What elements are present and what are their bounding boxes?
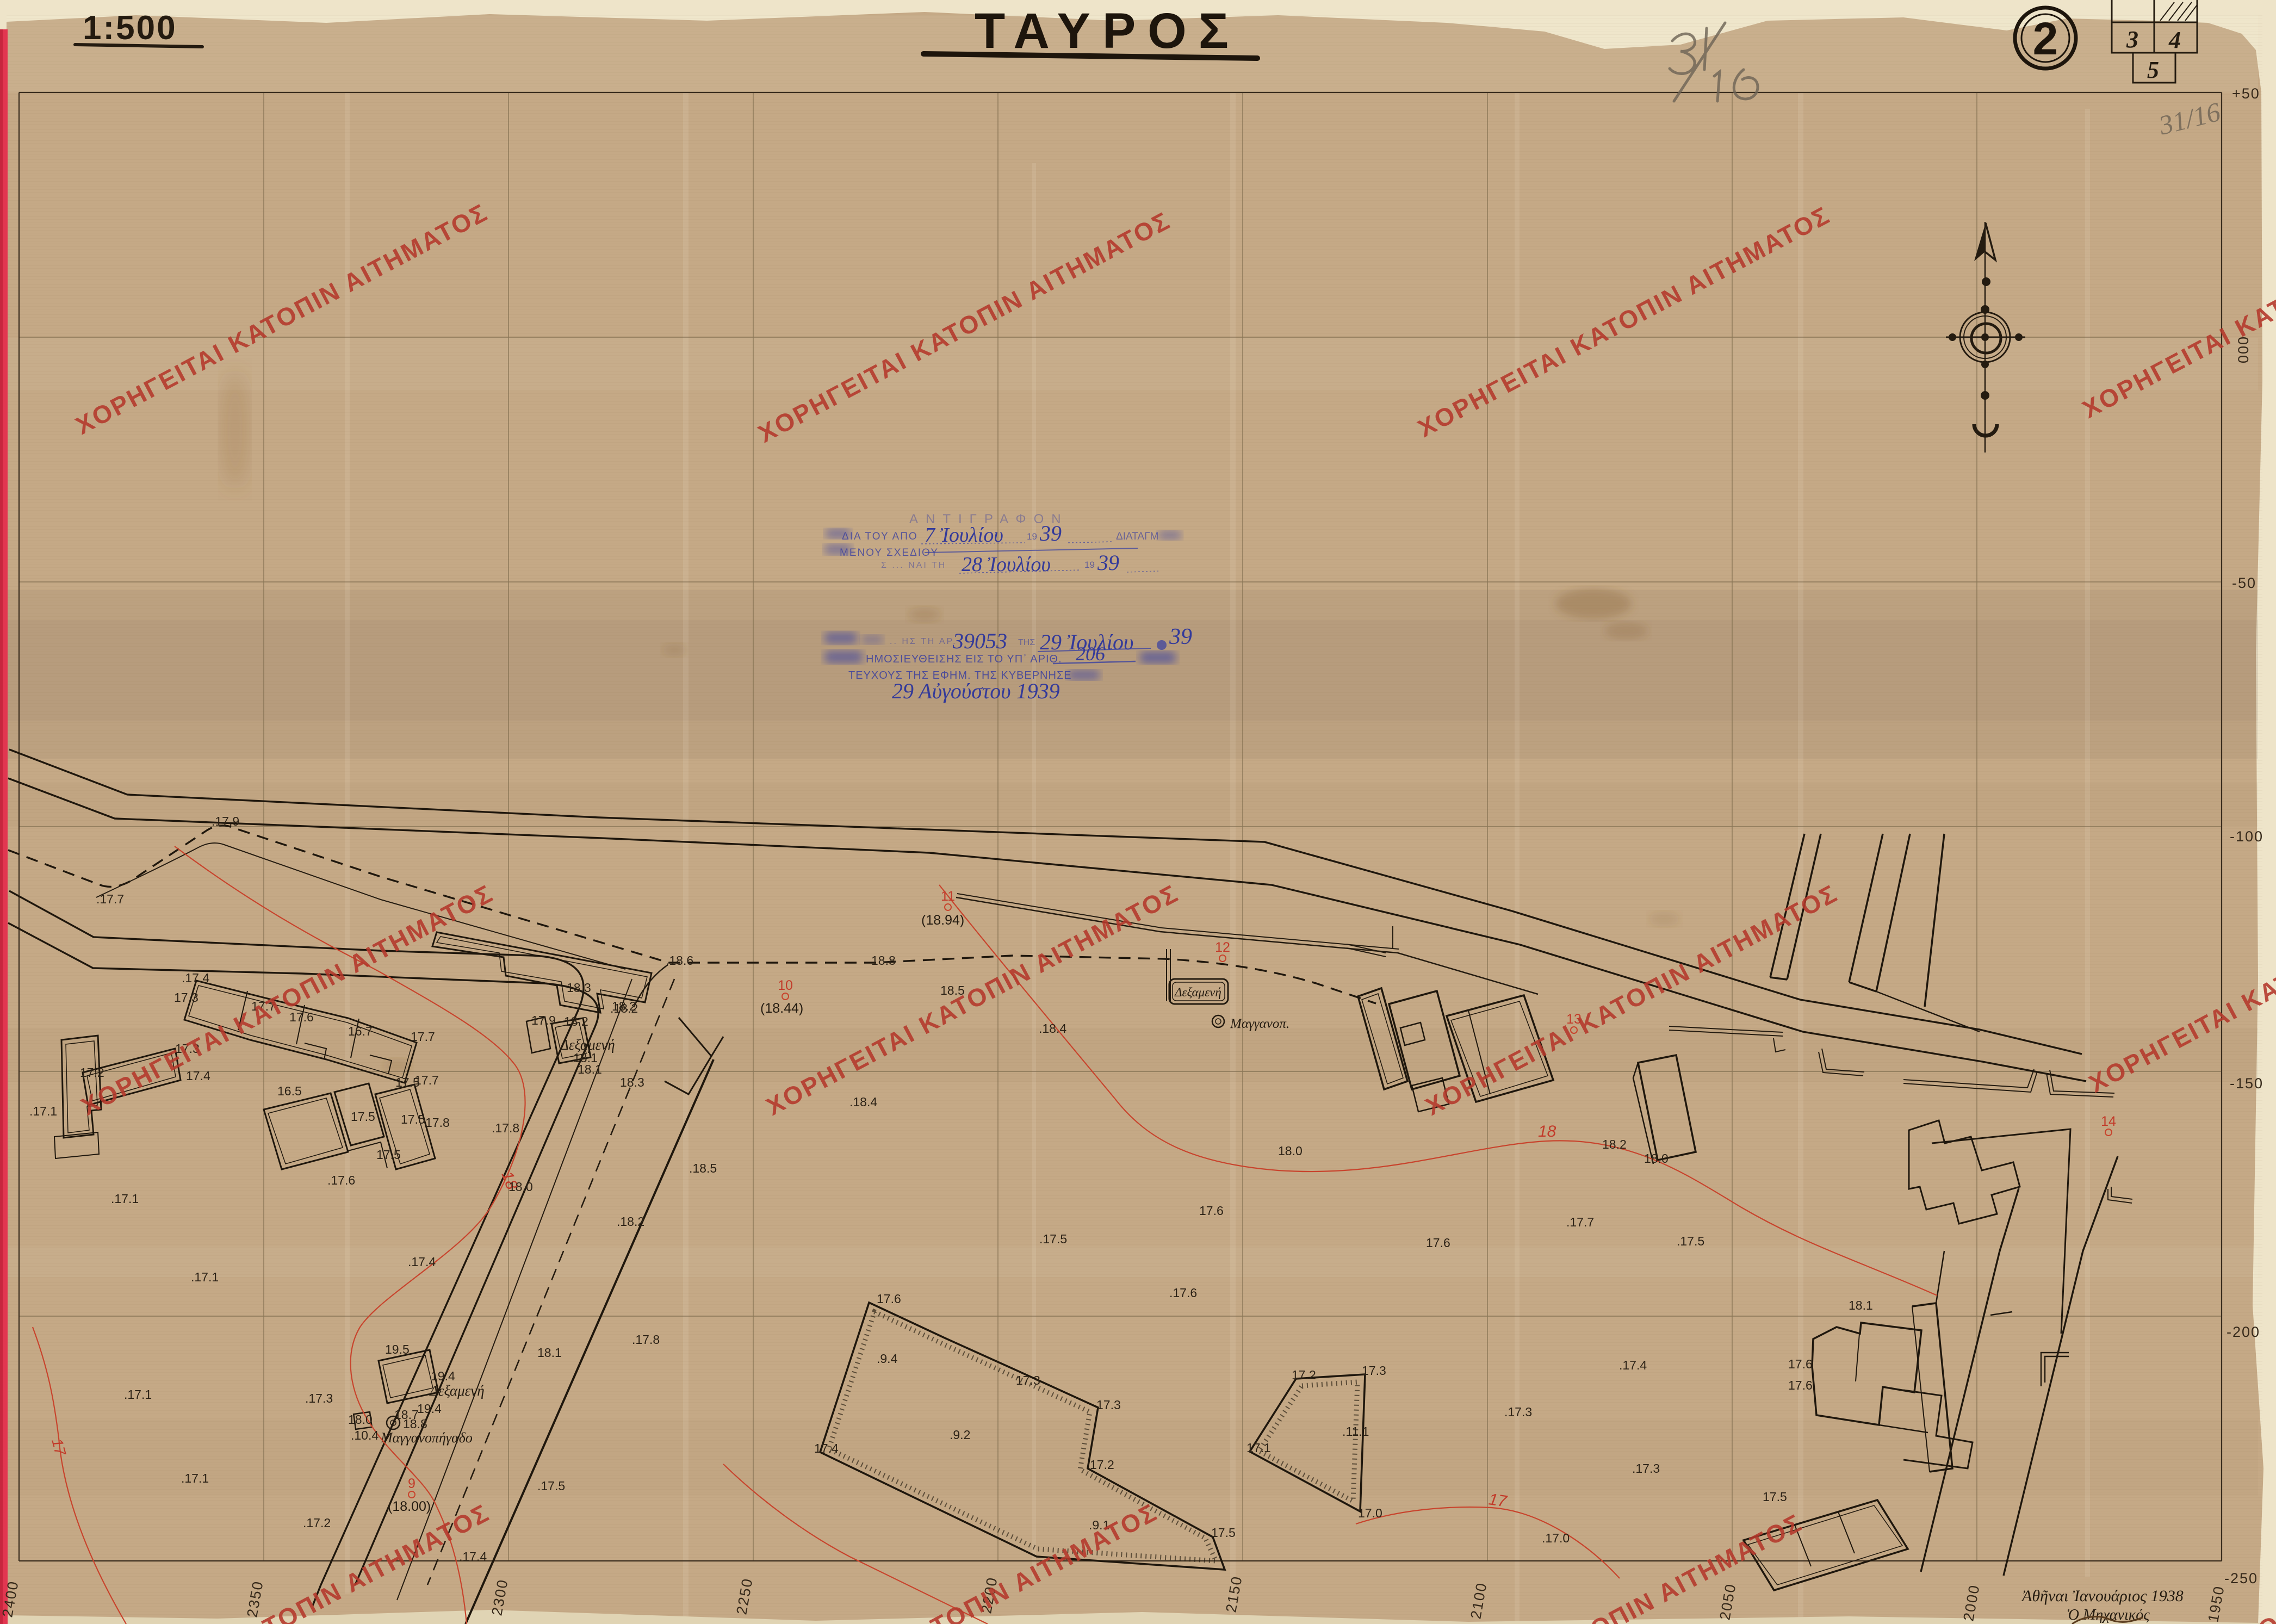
svg-text:5: 5 <box>2147 57 2159 83</box>
svg-text:18.0: 18.0 <box>1278 1144 1303 1158</box>
svg-text:19.4: 19.4 <box>417 1402 442 1416</box>
svg-text:.17.6: .17.6 <box>1169 1286 1197 1300</box>
svg-text:17.5: 17.5 <box>351 1109 375 1124</box>
svg-text:17.6: 17.6 <box>1199 1204 1224 1218</box>
svg-text:17.2: 17.2 <box>1090 1458 1114 1472</box>
svg-text:.17.2: .17.2 <box>303 1516 331 1530</box>
svg-text:-50: -50 <box>2232 575 2256 591</box>
svg-text:-150: -150 <box>2230 1075 2263 1092</box>
svg-text:17.4: 17.4 <box>186 1069 210 1083</box>
svg-text:.18.4: .18.4 <box>1039 1021 1066 1036</box>
svg-text:17.3: 17.3 <box>1016 1373 1040 1387</box>
svg-text:18.0: 18.0 <box>508 1180 533 1194</box>
svg-text:18.3: 18.3 <box>567 981 591 995</box>
svg-text:.17.4: .17.4 <box>408 1255 436 1269</box>
svg-text:14: 14 <box>2101 1114 2116 1129</box>
svg-text:18.1: 18.1 <box>537 1346 562 1360</box>
svg-text:39: 39 <box>1169 624 1192 649</box>
svg-text:17.3: 17.3 <box>1096 1398 1121 1412</box>
svg-text:17.8: 17.8 <box>425 1115 450 1130</box>
svg-text:18.1: 18.1 <box>578 1062 602 1076</box>
svg-text:.18.2: .18.2 <box>617 1214 644 1229</box>
svg-text:16.7: 16.7 <box>348 1024 373 1038</box>
svg-text:ΤΑΥΡΟΣ: ΤΑΥΡΟΣ <box>975 3 1241 59</box>
svg-text:17.5: 17.5 <box>376 1148 401 1162</box>
svg-text:18.2: 18.2 <box>612 999 636 1013</box>
svg-text:.17.6: .17.6 <box>327 1173 355 1187</box>
svg-text:18.3: 18.3 <box>620 1075 644 1089</box>
svg-text:-100: -100 <box>2230 828 2263 845</box>
svg-text:17.6: 17.6 <box>1788 1378 1813 1392</box>
svg-text:.17.3: .17.3 <box>305 1391 333 1405</box>
svg-text:.17.1: .17.1 <box>191 1270 219 1284</box>
svg-text:18.8: 18.8 <box>871 953 896 968</box>
svg-text:17.2: 17.2 <box>1292 1368 1316 1382</box>
svg-text:Δεξαμενή: Δεξαμενή <box>1174 985 1221 999</box>
svg-text:17.7: 17.7 <box>411 1030 435 1044</box>
svg-text:39: 39 <box>1097 550 1119 575</box>
svg-text:17.1: 17.1 <box>1246 1441 1271 1455</box>
svg-text:12: 12 <box>1215 940 1230 955</box>
svg-text:18: 18 <box>1538 1123 1556 1140</box>
svg-text:39053: 39053 <box>952 629 1007 653</box>
svg-text:11: 11 <box>941 889 955 904</box>
svg-text:.17.5: .17.5 <box>537 1479 565 1493</box>
svg-text:19: 19 <box>1027 531 1037 542</box>
svg-text:17.3: 17.3 <box>1362 1363 1386 1378</box>
svg-text:19.5: 19.5 <box>385 1342 410 1356</box>
svg-text:17.7: 17.7 <box>414 1073 439 1087</box>
svg-text:29 Αὐγούστου 1939: 29 Αὐγούστου 1939 <box>892 679 1060 703</box>
svg-text:-250: -250 <box>2224 1570 2258 1586</box>
svg-text:.17.8: .17.8 <box>492 1121 519 1135</box>
svg-text:19: 19 <box>1084 560 1095 570</box>
svg-text:ΜΕΝΟΥ ΣΧΕΔΙΟΥ: ΜΕΝΟΥ ΣΧΕΔΙΟΥ <box>840 547 939 559</box>
svg-text:.18.5: .18.5 <box>689 1161 717 1175</box>
svg-text:17.3: 17.3 <box>174 990 199 1005</box>
svg-text:206: 206 <box>1076 643 1105 665</box>
svg-text:(18.44): (18.44) <box>760 1001 803 1016</box>
svg-text:10: 10 <box>778 978 793 993</box>
svg-text:.18.4: .18.4 <box>849 1095 877 1109</box>
svg-text:16.5: 16.5 <box>277 1084 302 1098</box>
svg-text:.17.1: .17.1 <box>111 1192 139 1206</box>
svg-text:18.0: 18.0 <box>348 1412 373 1427</box>
svg-text:18.2: 18.2 <box>564 1014 588 1028</box>
svg-text:.17.1: .17.1 <box>124 1387 152 1402</box>
svg-text:.. ΗΣ ΤΗ ΑΡ.: .. ΗΣ ΤΗ ΑΡ. <box>890 637 957 646</box>
svg-text:.17.4: .17.4 <box>1619 1358 1647 1372</box>
svg-text:.9.4: .9.4 <box>877 1352 898 1366</box>
svg-text:18.2: 18.2 <box>1602 1137 1627 1151</box>
svg-text:4: 4 <box>2168 27 2181 53</box>
svg-text:17.2: 17.2 <box>80 1065 104 1080</box>
svg-text:.17.7: .17.7 <box>96 892 124 906</box>
svg-text:17.6: 17.6 <box>1788 1357 1813 1371</box>
svg-text:.17.4: .17.4 <box>459 1549 487 1564</box>
svg-text:Μαγγανοπ.: Μαγγανοπ. <box>1230 1016 1289 1031</box>
svg-text:39: 39 <box>1039 521 1062 546</box>
svg-text:.17.1: .17.1 <box>29 1104 57 1118</box>
svg-text:17.5: 17.5 <box>1763 1490 1787 1504</box>
svg-text:Σ ... ΝΑΙ ΤΗ: Σ ... ΝΑΙ ΤΗ <box>881 561 946 570</box>
svg-text:.17.4: .17.4 <box>182 971 209 985</box>
svg-text:+50: +50 <box>2232 85 2260 102</box>
svg-text:.11.1: .11.1 <box>1342 1424 1369 1439</box>
svg-text:.17.5: .17.5 <box>1677 1234 1704 1248</box>
svg-text:ΤΗΣ: ΤΗΣ <box>1018 638 1035 647</box>
svg-text:17.6: 17.6 <box>1426 1236 1450 1250</box>
svg-text:9: 9 <box>408 1476 415 1491</box>
svg-text:18.1: 18.1 <box>1849 1298 1873 1312</box>
svg-text:17.9: 17.9 <box>531 1013 556 1027</box>
svg-text:.9.2: .9.2 <box>950 1428 970 1442</box>
svg-text:.10.4: .10.4 <box>351 1428 379 1442</box>
svg-text:.17.5: .17.5 <box>1039 1232 1067 1246</box>
svg-text:.17.3: .17.3 <box>1504 1405 1532 1419</box>
svg-text:.17.1: .17.1 <box>181 1471 209 1485</box>
svg-text:(18.00): (18.00) <box>388 1499 431 1514</box>
svg-text:-200: -200 <box>2227 1324 2260 1340</box>
svg-text:17.5: 17.5 <box>1211 1526 1236 1540</box>
svg-text:1:500: 1:500 <box>83 9 177 47</box>
svg-text:17.0: 17.0 <box>1358 1506 1382 1520</box>
svg-text:Μαγγανοπήγαδο: Μαγγανοπήγαδο <box>380 1430 473 1446</box>
svg-text:19.4: 19.4 <box>431 1369 455 1383</box>
svg-text:ΔΙΑΤΑΓΜ: ΔΙΑΤΑΓΜ <box>1116 531 1158 542</box>
svg-text:.18.6: .18.6 <box>666 953 693 968</box>
svg-text:2: 2 <box>2033 13 2058 64</box>
svg-text:Δεξαμενή: Δεξαμενή <box>429 1383 485 1399</box>
svg-text:.17.7: .17.7 <box>1566 1215 1594 1229</box>
svg-text:.17.0: .17.0 <box>1542 1531 1570 1545</box>
svg-text:.17.3: .17.3 <box>1632 1461 1660 1476</box>
svg-text:17.6: 17.6 <box>877 1292 901 1306</box>
svg-text:.17.8: .17.8 <box>632 1332 660 1347</box>
svg-text:ΗΜΟΣΙΕΥΘΕΙΣΗΣ ΕΙΣ ΤΟ ΥΠ᾽ ΑΡΙΘ.: ΗΜΟΣΙΕΥΘΕΙΣΗΣ ΕΙΣ ΤΟ ΥΠ᾽ ΑΡΙΘ. <box>866 653 1062 665</box>
svg-text:17.4: 17.4 <box>814 1441 839 1455</box>
svg-text:Ἀθῆναι Ἰανουάριος 1938: Ἀθῆναι Ἰανουάριος 1938 <box>2021 1587 2184 1605</box>
svg-text:ΔΙΑ ΤΟΥ ΑΠΟ: ΔΙΑ ΤΟΥ ΑΠΟ <box>842 531 918 542</box>
svg-text:3: 3 <box>2126 26 2138 53</box>
svg-text:17.5: 17.5 <box>401 1112 425 1126</box>
svg-text:18.0: 18.0 <box>1644 1151 1669 1166</box>
svg-text:18.8: 18.8 <box>403 1417 427 1431</box>
svg-text:17: 17 <box>1487 1490 1509 1511</box>
svg-text:.17.9: .17.9 <box>212 814 239 828</box>
svg-text:(18.94): (18.94) <box>921 913 964 928</box>
